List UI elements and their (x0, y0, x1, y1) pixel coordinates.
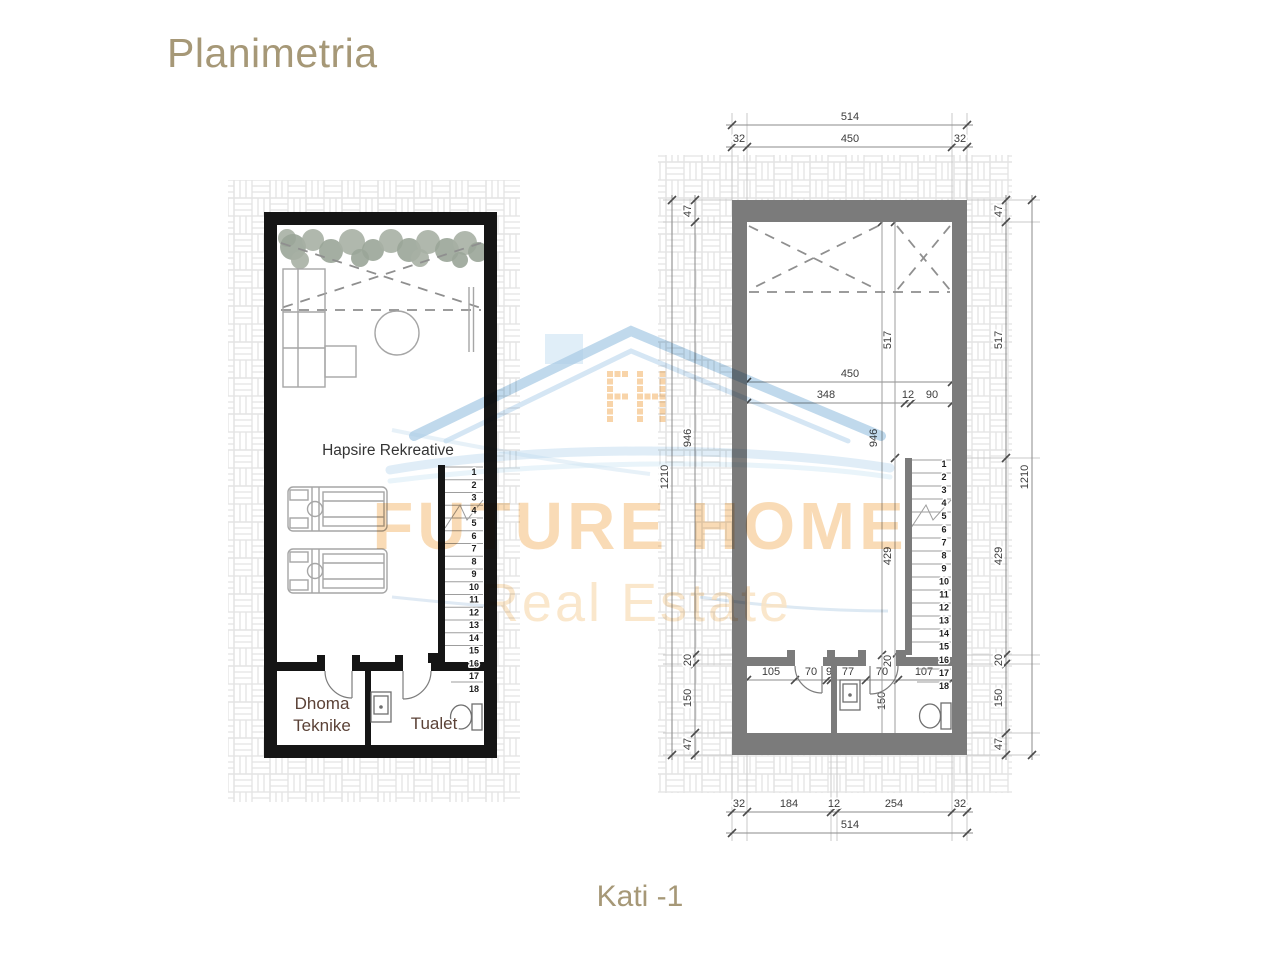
logo-pixel (660, 371, 666, 377)
stair-step-number: 11 (939, 590, 949, 600)
stair-step-number: 14 (939, 629, 949, 639)
logo-pixel (645, 394, 651, 400)
stair-step-number: 10 (939, 576, 949, 586)
plant-blob (452, 252, 468, 268)
stair-step-number: 6 (941, 524, 946, 534)
logo-pixel (607, 409, 613, 415)
dim-label: 20 (993, 654, 1005, 666)
logo-pixel (652, 394, 658, 400)
washbasin-tap (379, 705, 383, 709)
dim-label: 12 (902, 389, 914, 401)
stair-step-number: 16 (939, 655, 949, 665)
plant-blob (411, 249, 429, 267)
stair-step-number: 15 (469, 646, 479, 656)
logo-pixel (607, 371, 613, 377)
dim-label: 107 (915, 666, 933, 678)
logo-pixel (660, 401, 666, 407)
stair-step-number: 5 (941, 511, 946, 521)
dim-label: 32 (954, 798, 966, 810)
plant-blob (291, 251, 309, 269)
logo-pixel (637, 401, 643, 407)
washbasin-tap (848, 693, 852, 697)
dim-label: 450 (841, 368, 859, 380)
stair-step-number: 9 (471, 569, 476, 579)
logo-pixel (660, 386, 666, 392)
dim-label: 429 (993, 547, 1005, 565)
stair-step-number: 12 (939, 603, 949, 613)
stair-step-number: 13 (469, 620, 479, 630)
dim-label: 47 (682, 205, 694, 217)
plant-blob (351, 249, 369, 267)
logo-pixel (607, 416, 613, 422)
logo-pixel (622, 371, 628, 377)
dim-label: 254 (885, 798, 903, 810)
logo-pixel (637, 386, 643, 392)
washbasin-bowl (843, 684, 857, 702)
dim-label: 517 (882, 331, 894, 349)
floor-plan-drawing: 514 32 450 32 32 184 12 254 32 514 1210 … (0, 0, 1280, 960)
logo-pixel (660, 394, 666, 400)
dim-label: 514 (841, 819, 859, 831)
stair-step-number: 12 (469, 607, 479, 617)
logo-pixel (637, 394, 643, 400)
room-label-tualet: Tualet (411, 714, 458, 733)
dim-label: 514 (841, 111, 859, 123)
dim-label: 1210 (1019, 465, 1031, 489)
dim-label: 70 (805, 666, 817, 678)
logo-pixel (637, 371, 643, 377)
dim-label: 517 (993, 331, 1005, 349)
fh-logo-watermark (607, 371, 666, 422)
dim-label: 47 (993, 205, 1005, 217)
toilet-tank (472, 704, 482, 730)
dim-label: 77 (842, 666, 854, 678)
logo-pixel (607, 386, 613, 392)
stair-step-number: 15 (939, 642, 949, 652)
room-label-recreative: Hapsire Rekreative (322, 442, 454, 459)
logo-pixel (637, 416, 643, 422)
dim-label: 32 (733, 133, 745, 145)
dim-label: 32 (733, 798, 745, 810)
logo-pixel (637, 379, 643, 385)
stair-step-number: 13 (939, 616, 949, 626)
logo-pixel (615, 394, 621, 400)
stair-step-number: 14 (469, 633, 479, 643)
logo-pixel (607, 394, 613, 400)
stair-step-number: 2 (941, 472, 946, 482)
stair-step-number: 9 (941, 563, 946, 573)
dim-label: 1210 (659, 465, 671, 489)
dim-label: 105 (762, 666, 780, 678)
dim-label: 20 (682, 654, 694, 666)
dim-label: 12 (828, 798, 840, 810)
stair-step-number: 7 (941, 537, 946, 547)
stair-step-number: 16 (469, 658, 479, 668)
dim-label: 47 (682, 738, 694, 750)
dim-label: 184 (780, 798, 798, 810)
stair-step-number: 1 (941, 459, 946, 469)
stair-step-number: 8 (941, 550, 946, 560)
stair-step-number: 17 (469, 671, 479, 681)
stair-step-number: 18 (939, 681, 949, 691)
logo-pixel (660, 379, 666, 385)
logo-pixel (622, 394, 628, 400)
stair-step-number: 4 (941, 498, 946, 508)
dim-label: 450 (841, 133, 859, 145)
toilet-tank (941, 703, 951, 729)
dim-label: 90 (926, 389, 938, 401)
stair-step-number: 10 (469, 582, 479, 592)
floor-plan-page: Planimetria (0, 0, 1280, 960)
room-label-teknike: Teknike (293, 716, 351, 735)
logo-pixel (607, 401, 613, 407)
toilet-bowl (920, 704, 941, 728)
dim-label: 946 (682, 429, 694, 447)
watermark-brand-text: FUTURE HOME (372, 489, 907, 564)
dim-label: 150 (682, 689, 694, 707)
washbasin-bowl (374, 696, 388, 714)
stair-step-number: 3 (941, 485, 946, 495)
dim-label: 348 (817, 389, 835, 401)
room-label-dhoma: Dhoma (295, 694, 350, 713)
watermark-tagline-text: Real Estate (480, 573, 792, 633)
left-plan-interior (264, 212, 497, 758)
logo-pixel (637, 409, 643, 415)
stair-step-number: 11 (469, 595, 479, 605)
dim-label: 47 (993, 738, 1005, 750)
logo-pixel (660, 409, 666, 415)
logo-pixel (615, 371, 621, 377)
dim-label: 150 (993, 689, 1005, 707)
logo-pixel (607, 379, 613, 385)
stair-step-number: 17 (939, 668, 949, 678)
dim-label: 32 (954, 133, 966, 145)
stair-step-number: 18 (469, 684, 479, 694)
logo-pixel (660, 416, 666, 422)
floor-caption: Kati -1 (0, 880, 1280, 914)
